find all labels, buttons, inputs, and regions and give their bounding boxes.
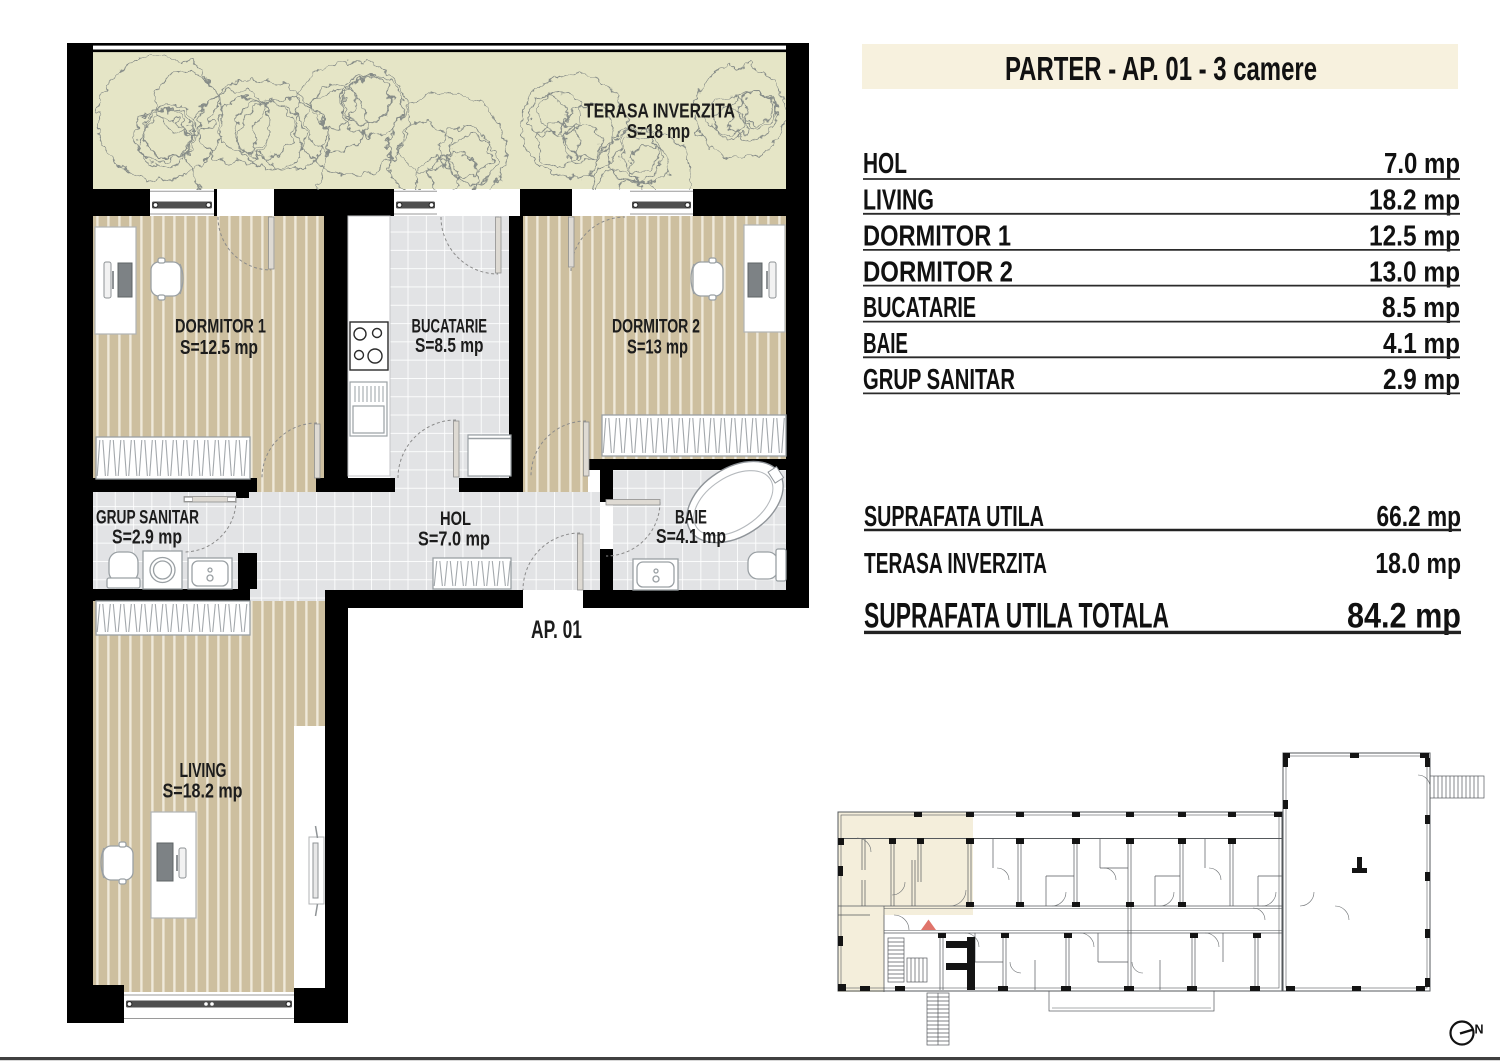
- svg-text:S=18.2 mp: S=18.2 mp: [163, 781, 243, 803]
- svg-text:12.5 mp: 12.5 mp: [1369, 220, 1460, 252]
- svg-text:S=2.9 mp: S=2.9 mp: [112, 527, 182, 549]
- svg-text:DORMITOR 2: DORMITOR 2: [863, 256, 1013, 288]
- svg-text:84.2 mp: 84.2 mp: [1347, 595, 1461, 635]
- svg-text:N: N: [1475, 1023, 1484, 1037]
- svg-text:DORMITOR 2: DORMITOR 2: [612, 317, 700, 338]
- svg-text:LIVING: LIVING: [180, 760, 227, 782]
- svg-text:S=12.5 mp: S=12.5 mp: [180, 337, 258, 359]
- svg-text:13.0 mp: 13.0 mp: [1369, 256, 1460, 288]
- svg-text:DORMITOR 1: DORMITOR 1: [175, 317, 266, 338]
- svg-text:66.2 mp: 66.2 mp: [1377, 501, 1462, 533]
- svg-text:HOL: HOL: [440, 509, 471, 530]
- svg-text:S=7.0 mp: S=7.0 mp: [418, 529, 490, 551]
- svg-text:SUPRAFATA UTILA TOTALA: SUPRAFATA UTILA TOTALA: [864, 595, 1169, 635]
- svg-text:DORMITOR 1: DORMITOR 1: [863, 220, 1011, 252]
- svg-text:PARTER - AP. 01 - 3 camere: PARTER - AP. 01 - 3 camere: [1005, 50, 1317, 87]
- svg-text:S=13 mp: S=13 mp: [627, 337, 688, 359]
- svg-text:18.0 mp: 18.0 mp: [1375, 548, 1461, 580]
- svg-text:S=18 mp: S=18 mp: [627, 121, 690, 143]
- svg-text:AP. 01: AP. 01: [531, 616, 582, 644]
- svg-text:8.5 mp: 8.5 mp: [1382, 292, 1460, 324]
- svg-text:S=8.5 mp: S=8.5 mp: [415, 335, 484, 357]
- svg-text:2.9 mp: 2.9 mp: [1383, 364, 1460, 396]
- svg-text:4.1 mp: 4.1 mp: [1383, 328, 1460, 360]
- svg-text:BAIE: BAIE: [863, 328, 908, 360]
- svg-text:LIVING: LIVING: [863, 185, 934, 217]
- svg-text:TERASA INVERZITA: TERASA INVERZITA: [584, 101, 735, 123]
- svg-text:18.2 mp: 18.2 mp: [1369, 185, 1460, 217]
- svg-text:7.0 mp: 7.0 mp: [1384, 148, 1460, 180]
- svg-text:GRUP SANITAR: GRUP SANITAR: [96, 508, 199, 529]
- svg-text:HOL: HOL: [863, 148, 907, 180]
- svg-text:S=4.1 mp: S=4.1 mp: [656, 526, 726, 548]
- svg-text:BUCATARIE: BUCATARIE: [863, 292, 976, 324]
- svg-text:TERASA INVERZITA: TERASA INVERZITA: [864, 548, 1047, 580]
- svg-text:SUPRAFATA UTILA: SUPRAFATA UTILA: [864, 501, 1044, 533]
- svg-text:GRUP SANITAR: GRUP SANITAR: [863, 364, 1015, 396]
